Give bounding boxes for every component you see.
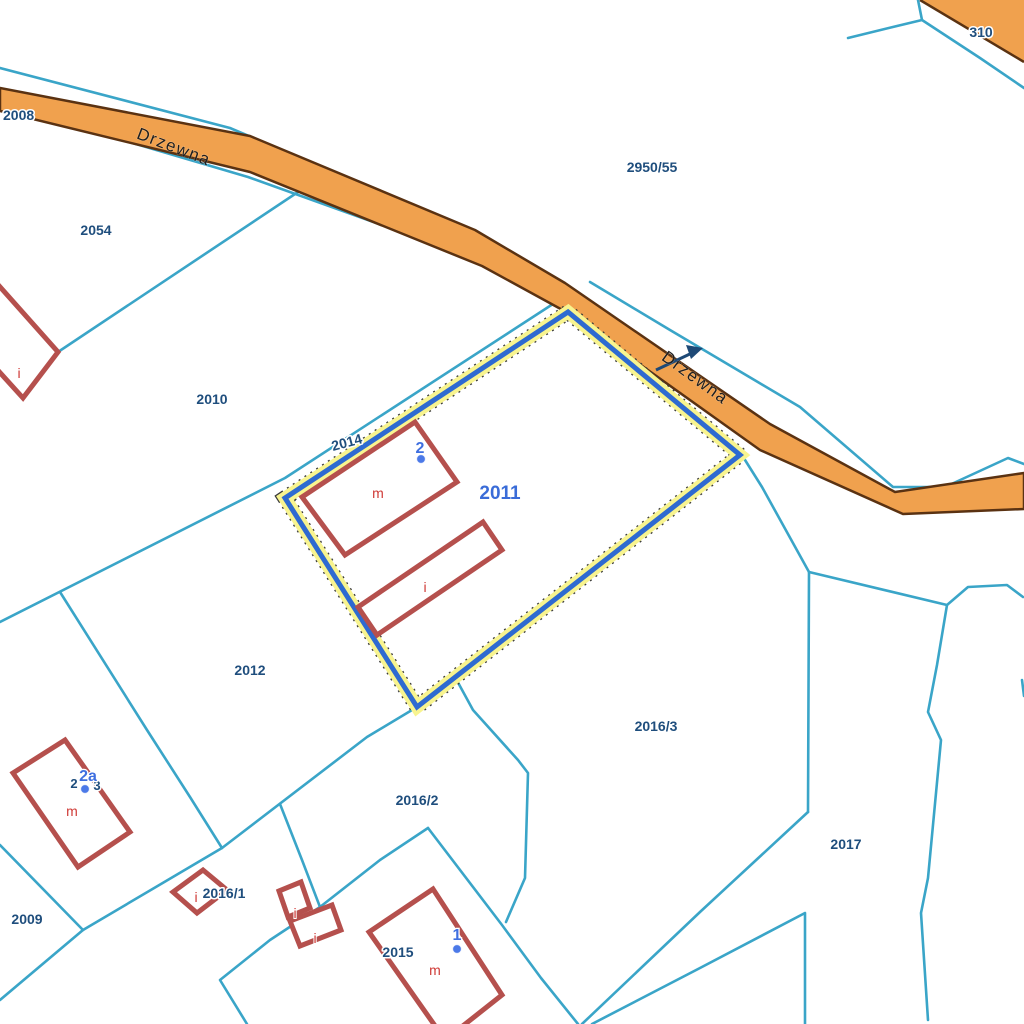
parcel-label-2054: 2054: [80, 222, 111, 238]
road-drzewna-surface: [0, 88, 1024, 514]
boundary-line: [0, 104, 556, 303]
parcel-label-2010: 2010: [196, 391, 227, 407]
parcel-label-2011-selected: 2011: [479, 483, 521, 504]
boundary-line: [455, 677, 528, 922]
boundary-line: [947, 585, 1023, 605]
parcel-boundaries: [0, 0, 1024, 1024]
building-label-i: i: [313, 930, 316, 946]
parcel-label-310: 310: [969, 24, 993, 40]
boundary-line: [320, 828, 428, 907]
building-label-m: m: [429, 962, 441, 978]
map-canvas[interactable]: 2008 2054 2950/55 310 2010 2014 2011 201…: [0, 0, 1024, 1024]
parcel-label-2016-2: 2016/2: [396, 792, 439, 808]
parcel-label-2016-1: 2016/1: [203, 885, 246, 901]
parcel-label-2016-3: 2016/3: [635, 718, 678, 734]
building-outline: [358, 522, 502, 635]
buildings-layer: [0, 228, 502, 1024]
boundary-line: [0, 302, 556, 622]
road-layer: [0, 0, 1024, 514]
address-dot: [453, 945, 462, 954]
address-point-2[interactable]: 2: [416, 440, 426, 464]
parcel-label-2009: 2009: [11, 911, 42, 927]
building-label-i: i: [293, 905, 296, 921]
boundary-line: [582, 812, 808, 1024]
parcel-label-2012: 2012: [234, 662, 265, 678]
building-label-i: i: [423, 579, 426, 595]
building-outline: [0, 270, 58, 398]
labels-layer: 2008 2054 2950/55 310 2010 2014 2011 201…: [3, 24, 993, 978]
building-label-m: m: [372, 485, 384, 501]
building-label-i: i: [194, 889, 197, 905]
address-dot: [81, 785, 90, 794]
svg-text:2a: 2a: [79, 768, 97, 785]
boundary-line: [58, 192, 298, 352]
building-label-m: m: [66, 803, 78, 819]
boundary-line: [740, 452, 809, 812]
address-dot: [417, 455, 426, 464]
boundary-line: [83, 707, 417, 930]
address-point-1[interactable]: 1: [453, 927, 462, 954]
svg-text:1: 1: [453, 927, 462, 944]
boundary-line: [592, 913, 805, 1024]
boundary-line: [0, 930, 83, 1000]
parcel-label-2017: 2017: [830, 836, 861, 852]
building-label-i: i: [17, 365, 20, 381]
parcel-label-2008: 2008: [3, 107, 34, 123]
boundary-line: [848, 20, 922, 38]
boundary-line: [921, 605, 947, 1020]
parcel-label-2950-55: 2950/55: [627, 159, 678, 175]
boundary-line: [809, 572, 947, 605]
parcel-label-fragment-2: 2: [70, 776, 77, 791]
parcel-label-2015: 2015: [382, 944, 413, 960]
